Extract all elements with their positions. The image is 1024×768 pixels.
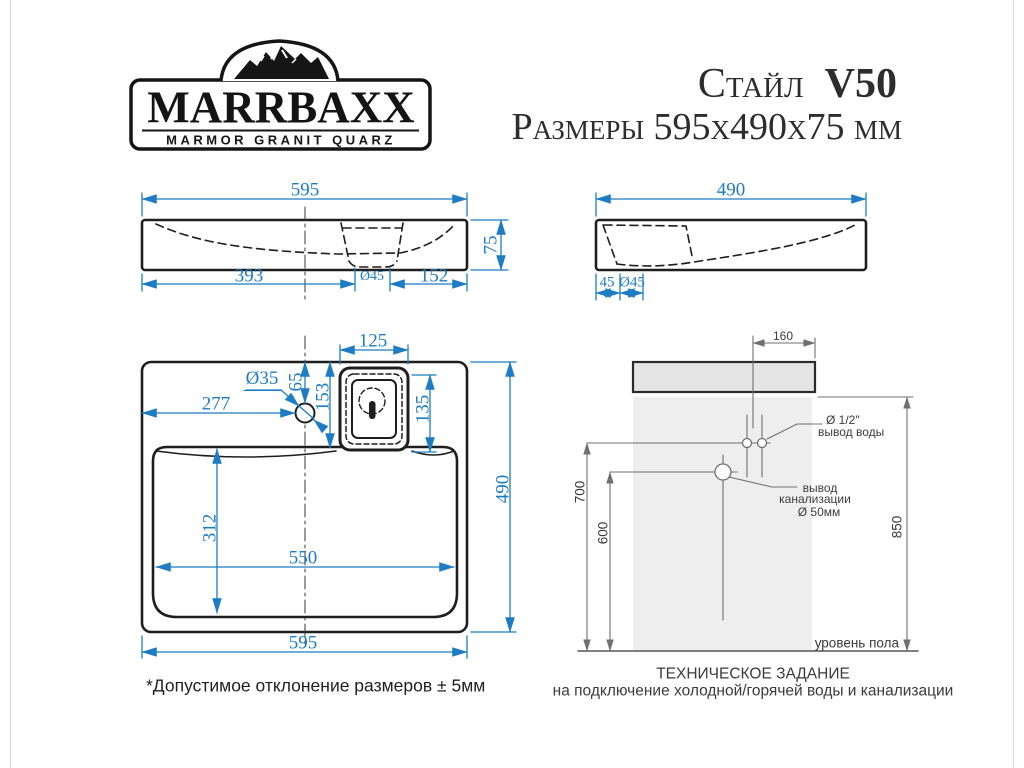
dim-front-drain-to-right: 152 — [420, 267, 449, 286]
model-name: Стайл — [698, 61, 804, 107]
page-title: Стайл V50 — [698, 63, 897, 105]
drawing-page: MARRBAXX MARMOR GRANIT QUARZ Стайл V50 Р… — [0, 0, 1024, 768]
model-code: V50 — [825, 61, 897, 107]
tech-task-subtitle: на подключение холодной/горячей воды и к… — [553, 683, 954, 699]
dim-front-drain-diameter: Ø45 — [360, 270, 384, 284]
dim-install-height-sewage: 600 — [596, 522, 610, 545]
drain-box — [340, 368, 408, 450]
dim-top-faucet-diameter: Ø35 — [244, 369, 281, 391]
overall-dimensions: Размеры 595х490х75 мм — [511, 108, 902, 146]
dim-side-depth: 490 — [717, 181, 746, 200]
dim-install-height-rim: 850 — [890, 516, 904, 539]
water-outlet-right — [758, 439, 767, 448]
tolerance-note: *Допустимое отклонение размеров ± 5мм — [146, 677, 485, 695]
label-sewage-size: Ø 50мм — [798, 506, 841, 518]
label-floor-level: уровень пола — [815, 636, 899, 650]
dim-front-left-to-drain: 393 — [235, 267, 264, 286]
dim-top-basin-depth: 312 — [201, 514, 220, 543]
brand-tagline: MARMOR GRANIT QUARZ — [166, 134, 396, 147]
dim-side-drain-offset: 45 — [600, 276, 615, 291]
dim-front-width: 595 — [291, 181, 320, 200]
tech-task-title: ТЕХНИЧЕСКОЕ ЗАДАНИЕ — [656, 666, 850, 682]
sink-block — [633, 362, 815, 392]
dim-install-water-offset: 160 — [773, 330, 793, 342]
dim-top-drain-box-width: 125 — [359, 332, 388, 351]
dim-top-depth: 490 — [494, 475, 513, 504]
drain-slot — [369, 401, 376, 419]
sewage-outlet — [715, 464, 731, 480]
dim-top-width: 595 — [289, 634, 318, 653]
front-view — [142, 193, 508, 303]
dim-top-faucet-from-left: 277 — [202, 395, 231, 414]
water-outlet-left — [743, 439, 752, 448]
dim-top-drain-box-height: 135 — [414, 395, 433, 424]
dim-top-basin-width: 550 — [289, 549, 318, 568]
dim-top-faucet-offset: 65 — [287, 373, 306, 392]
dim-install-height-water: 700 — [573, 481, 587, 504]
dim-top-drain-offset: 153 — [314, 383, 333, 412]
dim-side-drain-diameter: Ø45 — [619, 276, 645, 291]
label-water-outlet: вывод воды — [818, 426, 884, 438]
installation-diagram — [578, 336, 918, 651]
label-sewage-line2: канализации — [779, 493, 851, 505]
brand-name: MARRBAXX — [147, 86, 414, 131]
dim-front-height: 75 — [482, 236, 501, 255]
